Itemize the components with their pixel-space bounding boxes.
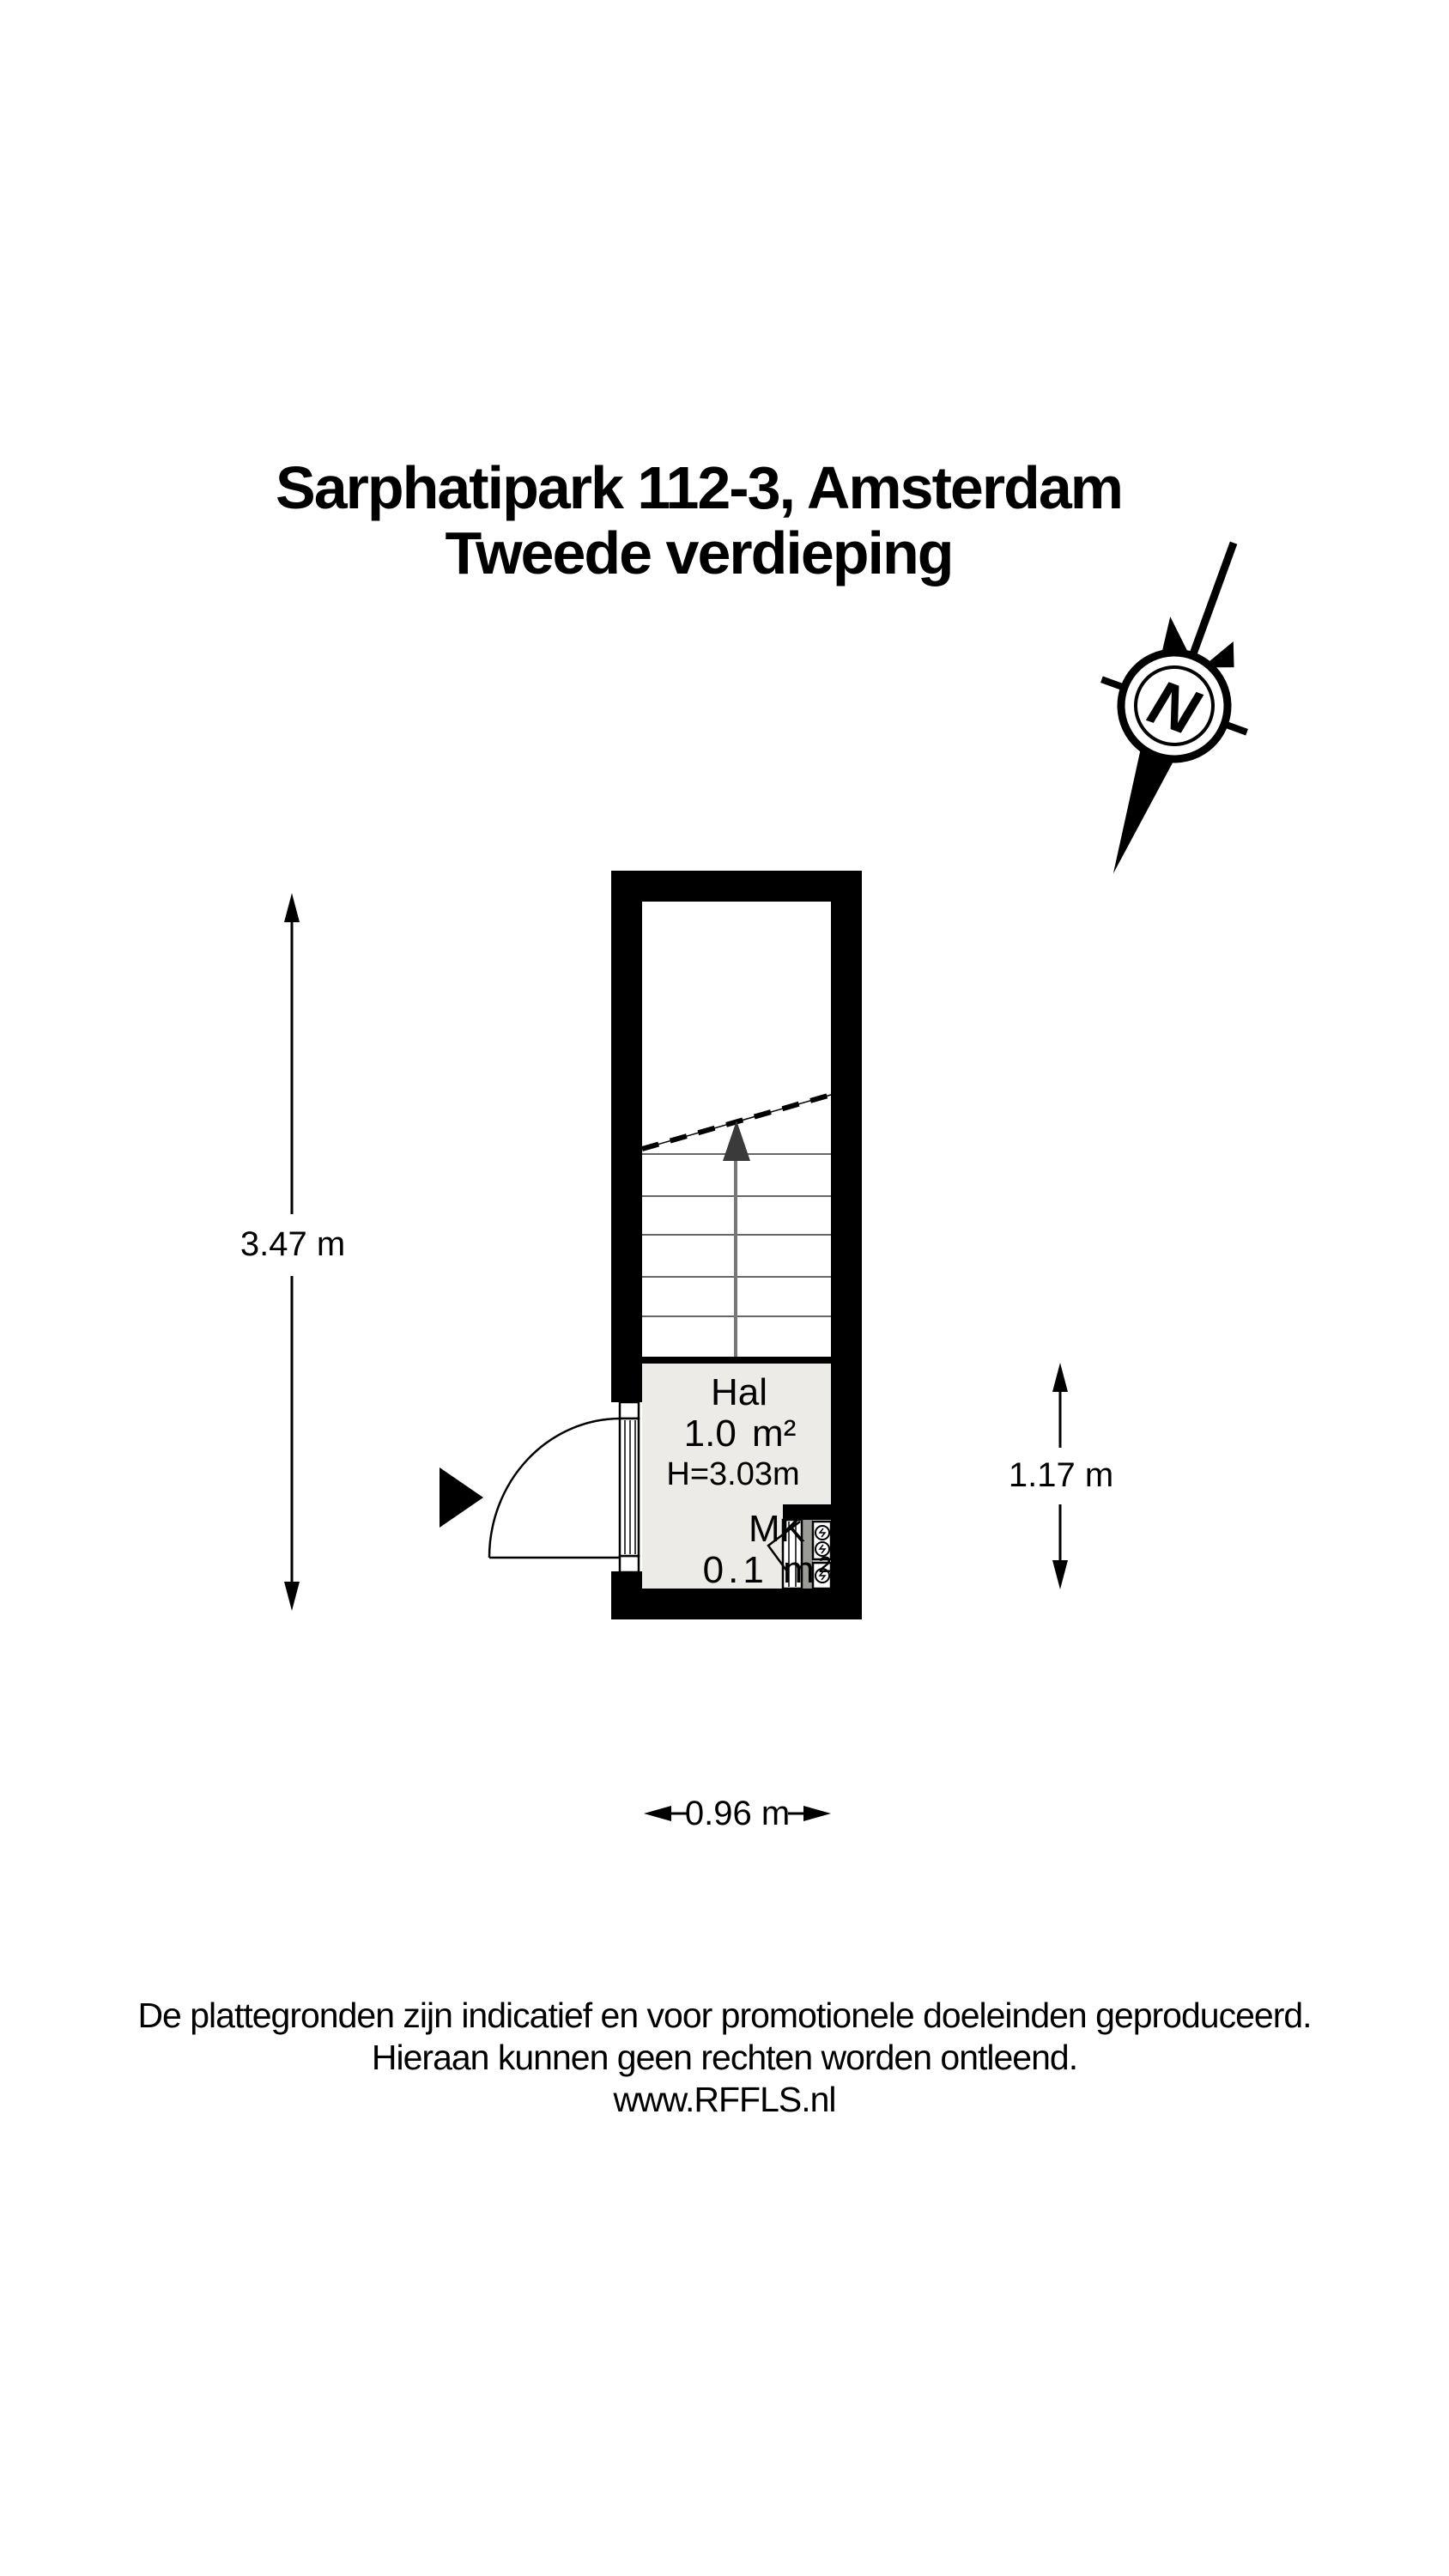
- room-area-mk: 0.1 m²: [703, 1549, 836, 1592]
- dimension-label-hall-width: 0.96 m: [685, 1795, 790, 1833]
- floorplan-drawing: N: [0, 0, 1449, 2576]
- disclaimer-line-2: Hieraan kunnen geen rechten worden ontle…: [0, 2038, 1449, 2078]
- page-title-address: Sarphatipark 112-3, Amsterdam: [0, 453, 1397, 522]
- page-title-floor: Tweede verdieping: [0, 519, 1397, 587]
- arrowhead-up-icon: [1052, 1363, 1068, 1392]
- door-jamb-bottom: [620, 1556, 639, 1572]
- room-area-hal: 1.0 m²: [684, 1413, 797, 1455]
- arrowhead-right-icon: [803, 1806, 831, 1821]
- room-name-mk: MK: [749, 1508, 805, 1551]
- arrowhead-down-icon: [1052, 1560, 1068, 1589]
- dimension-label-hall-height: 1.17 m: [1009, 1456, 1113, 1495]
- disclaimer-website: www.RFFLS.nl: [0, 2080, 1449, 2120]
- arrowhead-up-icon: [284, 893, 300, 922]
- disclaimer-line-1: De plattegronden zijn indicatief en voor…: [0, 1996, 1449, 2036]
- compass-south-spike: [1097, 744, 1176, 880]
- entrance-arrow-icon: [440, 1467, 483, 1528]
- arrowhead-left-icon: [644, 1806, 671, 1821]
- room-name-hal: Hal: [711, 1371, 767, 1414]
- dimension-label-total-height: 3.47 m: [240, 1225, 345, 1264]
- door-swing-arc: [489, 1419, 621, 1558]
- door-jamb-top: [620, 1402, 639, 1419]
- arrowhead-down-icon: [284, 1582, 300, 1611]
- floorplan-page: N Sarphatipark 112-3, Amsterdam Tweede v…: [0, 0, 1449, 2576]
- room-height-hal: H=3.03m: [666, 1456, 799, 1493]
